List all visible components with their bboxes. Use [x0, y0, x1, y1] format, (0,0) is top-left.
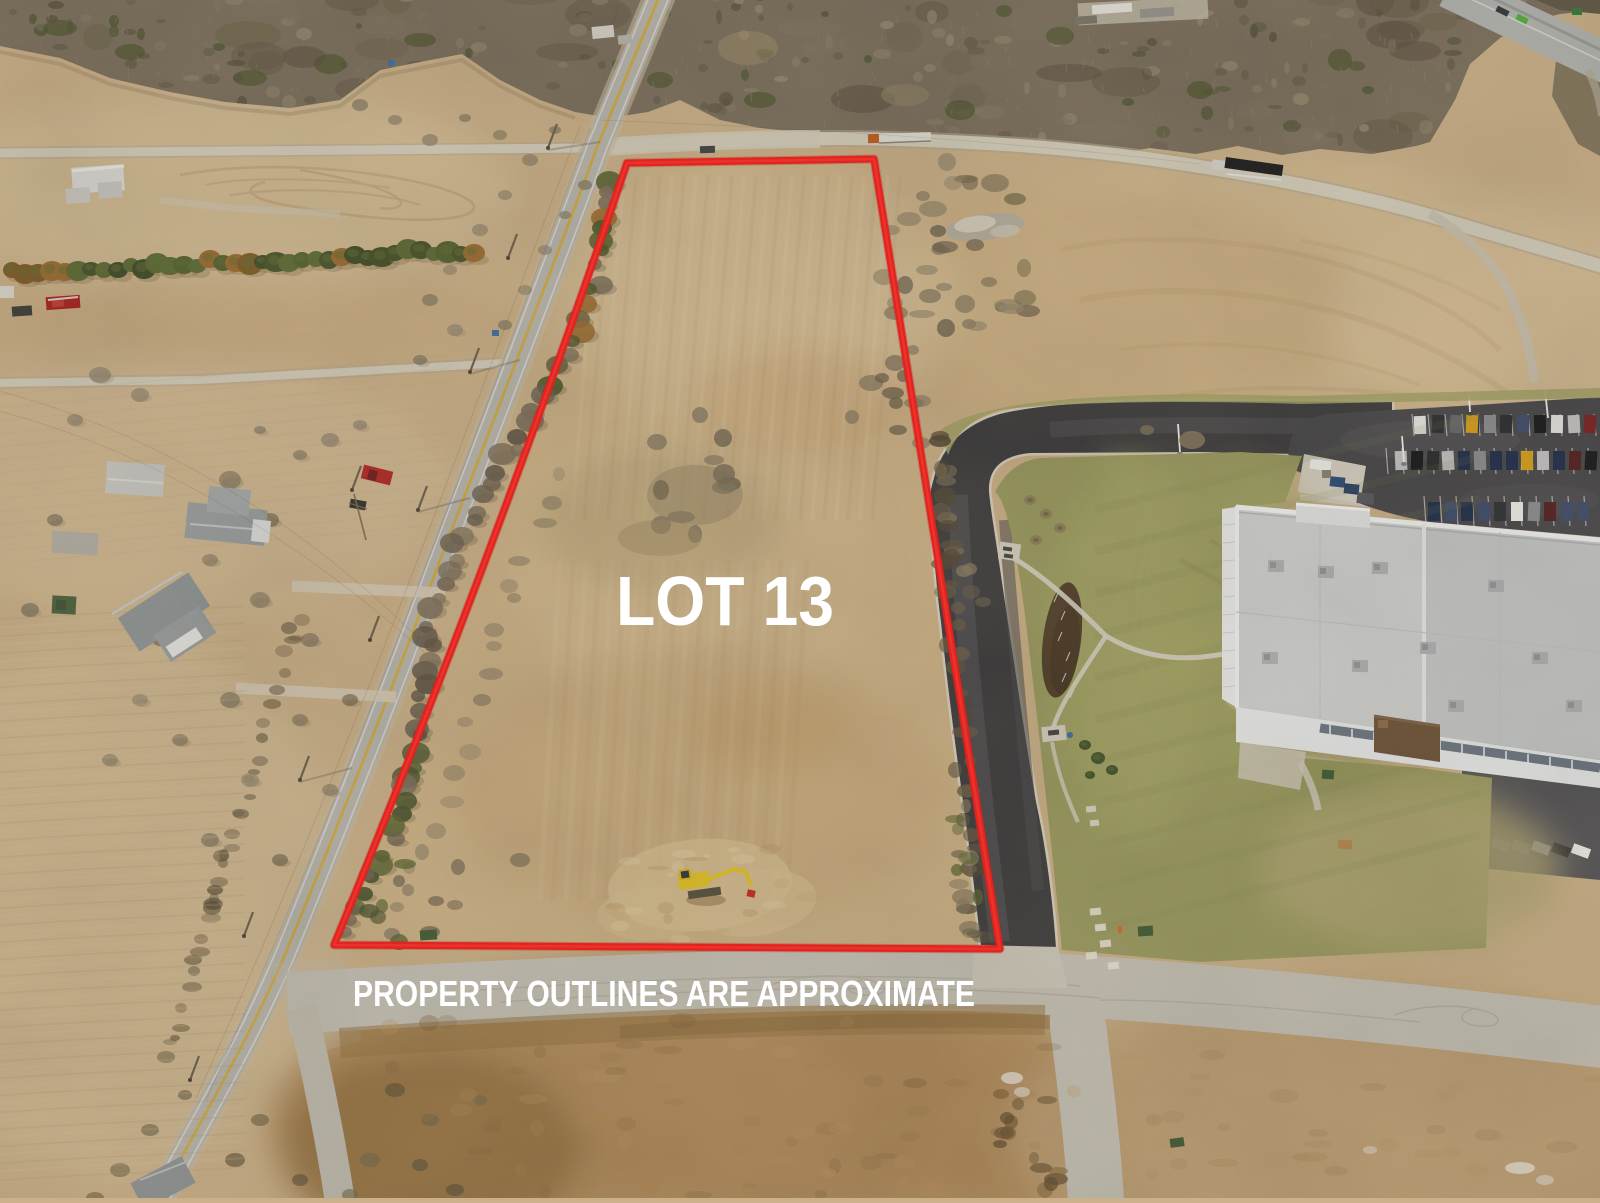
svg-text:PROPERTY OUTLINES ARE APPROXIM: PROPERTY OUTLINES ARE APPROXIMATE — [353, 973, 975, 1014]
svg-text:LOT 13: LOT 13 — [616, 562, 834, 640]
